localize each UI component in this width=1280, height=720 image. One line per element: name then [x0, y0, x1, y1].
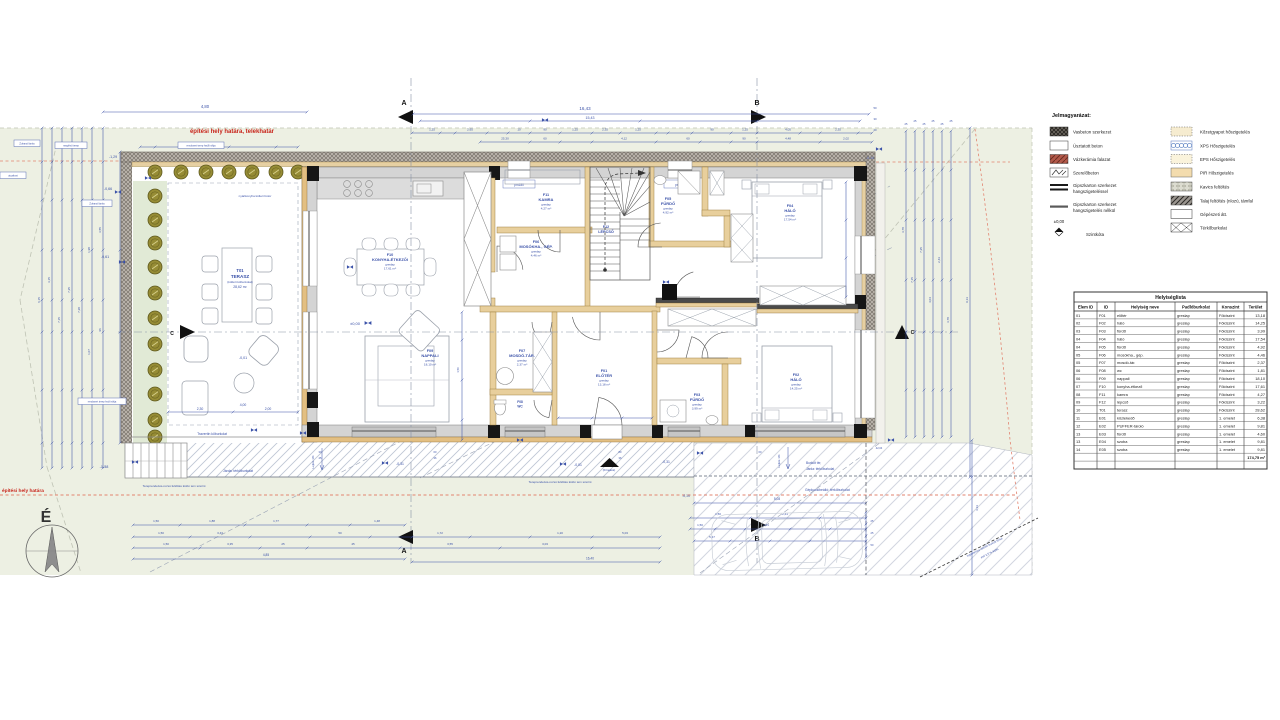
- svg-text:1,50: 1,50: [163, 542, 169, 546]
- svg-text:90: 90: [543, 128, 547, 132]
- svg-text:1,50: 1,50: [697, 523, 703, 527]
- svg-text:1. emelet: 1. emelet: [1219, 447, 1236, 452]
- svg-text:2,02: 2,02: [843, 137, 849, 141]
- svg-text:kamra: kamra: [1117, 392, 1129, 397]
- svg-text:F04: F04: [1099, 337, 1107, 342]
- svg-text:13: 13: [1076, 439, 1080, 444]
- svg-text:A: A: [401, 100, 406, 107]
- svg-text:Padlóburkolat: Padlóburkolat: [1182, 304, 1211, 309]
- svg-text:nyárikonyha külteri bútor: nyárikonyha külteri bútor: [239, 194, 272, 198]
- svg-text:45: 45: [351, 542, 355, 546]
- svg-text:EPS Hőszigetelés: EPS Hőszigetelés: [1200, 157, 1236, 162]
- svg-text:Földszint: Földszint: [1219, 344, 1235, 349]
- svg-text:4,48: 4,48: [785, 137, 791, 141]
- svg-text:greslap: greslap: [1177, 392, 1190, 397]
- svg-text:greslap: greslap: [1177, 360, 1190, 365]
- svg-text:Kőzetgyapot hőszigetelés: Kőzetgyapot hőszigetelés: [1200, 130, 1251, 135]
- svg-text:174,75 m²: 174,75 m²: [1247, 455, 1265, 460]
- svg-text:9,13: 9,13: [965, 297, 969, 303]
- svg-text:WC: WC: [517, 405, 523, 409]
- svg-text:T01: T01: [236, 268, 244, 273]
- svg-text:-0,14: -0,14: [866, 156, 874, 160]
- svg-text:-1,38: -1,38: [100, 465, 109, 469]
- svg-text:Járda: térkőburkolat: Járda: térkőburkolat: [806, 467, 834, 471]
- svg-text:konyha-étkező: konyha-étkező: [1117, 384, 1143, 389]
- svg-text:4,80: 4,80: [201, 104, 210, 109]
- svg-text:Szerelőbeton: Szerelőbeton: [1073, 171, 1099, 176]
- svg-text:építési hely határa, telekhatá: építési hely határa, telekhatár: [190, 129, 275, 135]
- svg-text:E01: E01: [1099, 416, 1106, 421]
- svg-text:közlekedő: közlekedő: [1117, 416, 1135, 421]
- svg-text:1. emelet: 1. emelet: [1219, 431, 1236, 436]
- svg-text:Gépészeti átt.: Gépészeti átt.: [1200, 212, 1227, 217]
- svg-text:18,10 m²: 18,10 m²: [424, 363, 436, 367]
- svg-text:2,65: 2,65: [467, 128, 473, 132]
- svg-text:Vasbeton szerkezet: Vasbeton szerkezet: [1073, 130, 1112, 135]
- svg-text:Földszint: Földszint: [1219, 408, 1235, 413]
- svg-text:50: 50: [338, 531, 342, 535]
- svg-text:LÉPCSŐ: LÉPCSŐ: [598, 229, 614, 234]
- svg-text:3,99 m²: 3,99 m²: [692, 407, 703, 411]
- svg-text:greslap: greslap: [1177, 344, 1190, 349]
- svg-text:1. emelet: 1. emelet: [1219, 416, 1236, 421]
- svg-text:3,99: 3,99: [1257, 329, 1265, 334]
- svg-text:meglévő terep: meglévő terep: [63, 145, 79, 148]
- svg-text:E04: E04: [1099, 439, 1107, 444]
- svg-text:greslap: greslap: [1177, 439, 1190, 444]
- svg-text:TERASZ: TERASZ: [231, 274, 250, 279]
- svg-text:T01: T01: [1099, 408, 1106, 413]
- svg-text:fürdő: fürdő: [1117, 431, 1127, 436]
- svg-text:(kültéri kőburkolat): (kültéri kőburkolat): [227, 280, 252, 284]
- svg-text:F02: F02: [1099, 321, 1106, 326]
- svg-text:17,54: 17,54: [1255, 337, 1266, 342]
- svg-text:60: 60: [543, 137, 547, 141]
- svg-text:7,28: 7,28: [77, 307, 81, 313]
- svg-text:1,20: 1,20: [557, 531, 563, 535]
- svg-text:Földszint: Földszint: [1219, 400, 1235, 405]
- svg-text:3,03: 3,03: [542, 542, 548, 546]
- svg-text:Terület: Terület: [1249, 304, 1263, 309]
- svg-text:Földszint: Földszint: [1219, 313, 1235, 318]
- svg-text:4,46: 4,46: [1257, 352, 1265, 357]
- svg-text:háló: háló: [1117, 337, 1124, 342]
- svg-text:-1,29: -1,29: [109, 155, 117, 159]
- svg-text:1,25: 1,25: [635, 128, 641, 132]
- svg-text:6,15: 6,15: [37, 297, 41, 303]
- svg-text:F08: F08: [517, 400, 523, 404]
- svg-text:háló: háló: [1117, 321, 1124, 326]
- svg-text:5,08: 5,08: [774, 497, 780, 501]
- svg-text:-0,01: -0,01: [574, 463, 582, 467]
- svg-text:9,81: 9,81: [1257, 447, 1265, 452]
- svg-text:XPS Hőszigetelés: XPS Hőszigetelés: [1200, 144, 1236, 149]
- svg-text:greslap: greslap: [1177, 352, 1190, 357]
- svg-text:NAPPALI: NAPPALI: [421, 353, 438, 358]
- svg-text:17,61 m²: 17,61 m²: [384, 267, 396, 271]
- svg-text:Földszint: Földszint: [1219, 368, 1235, 373]
- svg-text:greslap: greslap: [1177, 431, 1190, 436]
- svg-text:1,77: 1,77: [273, 519, 279, 523]
- svg-text:F12: F12: [1099, 400, 1106, 405]
- svg-text:3,55: 3,55: [98, 227, 102, 233]
- svg-text:Járda: térkőburkolat: Járda: térkőburkolat: [223, 469, 253, 473]
- svg-text:1,50: 1,50: [456, 367, 460, 373]
- svg-text:É: É: [41, 507, 52, 526]
- svg-text:07: 07: [1076, 384, 1080, 389]
- svg-text:Gipszkarton szerkezet: Gipszkarton szerkezet: [1073, 202, 1117, 207]
- svg-text:MOSÓKHA., GÉP.: MOSÓKHA., GÉP.: [519, 244, 552, 249]
- svg-text:1,48: 1,48: [374, 519, 380, 523]
- svg-text:06: 06: [1076, 376, 1080, 381]
- svg-text:rendszert terep hsúli síkja: rendszert terep hsúli síkja: [88, 401, 117, 404]
- svg-text:építési hely határa: építési hely határa: [2, 488, 44, 494]
- svg-text:-0,61: -0,61: [101, 255, 109, 259]
- svg-text:rendszert terep hsúlli síkja: rendszert terep hsúlli síkja: [186, 145, 216, 148]
- svg-text:F03: F03: [1099, 329, 1106, 334]
- svg-text:±0,00: ±0,00: [350, 321, 361, 326]
- svg-text:1,07: 1,07: [87, 349, 91, 355]
- svg-text:3,78: 3,78: [946, 317, 950, 323]
- svg-text:28,62: 28,62: [1255, 408, 1265, 413]
- svg-text:4,04: 4,04: [928, 297, 932, 303]
- svg-text:Földszint: Földszint: [1219, 360, 1235, 365]
- svg-text:1,72: 1,72: [437, 531, 443, 535]
- svg-text:greslap: greslap: [1177, 408, 1190, 413]
- svg-text:3,13: 3,13: [975, 505, 979, 511]
- svg-text:greslap: greslap: [1177, 337, 1190, 342]
- svg-text:01: 01: [1076, 313, 1080, 318]
- svg-text:nappali: nappali: [1117, 376, 1130, 381]
- svg-text:1,25: 1,25: [572, 128, 578, 132]
- svg-text:1,98: 1,98: [87, 247, 91, 253]
- svg-text:17,54 m²: 17,54 m²: [784, 218, 796, 222]
- svg-text:KAMRA: KAMRA: [539, 197, 554, 202]
- svg-text:mosdó-tár.: mosdó-tár.: [1117, 360, 1135, 365]
- svg-text:Földszint: Földszint: [1219, 384, 1235, 389]
- svg-text:Földszint: Földszint: [1219, 352, 1235, 357]
- svg-text:terasz: terasz: [1117, 408, 1128, 413]
- svg-text:utcafront: utcafront: [8, 175, 18, 178]
- svg-text:Elem ID: Elem ID: [1078, 304, 1093, 309]
- svg-text:11: 11: [1076, 416, 1080, 421]
- svg-text:Tereprendezés-rozsú feltöltés: Tereprendezés-rozsú feltöltés külön terv…: [529, 480, 592, 484]
- svg-text:szoba: szoba: [1117, 447, 1128, 452]
- svg-text:fürdő: fürdő: [1117, 329, 1127, 334]
- svg-text:7,15: 7,15: [910, 277, 914, 283]
- svg-text:Kavics feltöltés: Kavics feltöltés: [1200, 185, 1230, 190]
- svg-text:F11: F11: [1099, 392, 1105, 397]
- svg-text:greslap: greslap: [1177, 423, 1190, 428]
- svg-text:greslap: greslap: [1177, 321, 1190, 326]
- svg-text:lépcső: lépcső: [1117, 400, 1129, 405]
- svg-text:Zuhanó lámla: Zuhanó lámla: [89, 203, 105, 206]
- svg-text:2,35: 2,35: [835, 128, 841, 132]
- svg-text:szoba: szoba: [1117, 439, 1128, 444]
- svg-text:4,46 m²: 4,46 m²: [531, 254, 542, 258]
- svg-text:50: 50: [873, 106, 877, 110]
- svg-text:30: 30: [873, 117, 877, 121]
- svg-text:7,25: 7,25: [67, 287, 71, 293]
- svg-text:20: 20: [873, 128, 877, 132]
- svg-text:pm180: pm180: [514, 183, 524, 187]
- svg-text:7,15: 7,15: [57, 317, 61, 323]
- svg-text:C: C: [170, 331, 174, 337]
- svg-text:4,92 m²: 4,92 m²: [663, 211, 674, 215]
- svg-text:1,81: 1,81: [1257, 368, 1265, 373]
- svg-text:E02: E02: [1099, 423, 1106, 428]
- svg-text:3,78: 3,78: [901, 227, 905, 233]
- svg-text:2,41: 2,41: [763, 523, 769, 527]
- svg-text:9,81: 9,81: [1257, 423, 1265, 428]
- svg-text:17,61: 17,61: [1255, 384, 1265, 389]
- svg-text:14,25 m²: 14,25 m²: [790, 387, 802, 391]
- svg-text:08: 08: [1076, 392, 1080, 397]
- svg-text:Úsztatott beton: Úsztatott beton: [1073, 144, 1103, 149]
- svg-text:28,62 m²: 28,62 m²: [233, 285, 247, 289]
- svg-text:1,25: 1,25: [429, 128, 435, 132]
- svg-text:05: 05: [1076, 352, 1080, 357]
- svg-text:Zuhanó lámla: Zuhanó lámla: [19, 143, 35, 146]
- svg-text:4,12: 4,12: [621, 137, 627, 141]
- svg-text:Tereprendezés-rozsú feltöltés: Tereprendezés-rozsú feltöltés külön terv…: [143, 484, 206, 488]
- svg-text:Talaj feltöltés (nlozú, támfal: Talaj feltöltés (nlozú, támfal: [1200, 199, 1253, 204]
- svg-text:Travertin kőburkolat: Travertin kőburkolat: [197, 432, 227, 436]
- svg-text:02: 02: [1076, 321, 1080, 326]
- svg-text:7,25: 7,25: [919, 247, 923, 253]
- svg-text:HÁLÓ: HÁLÓ: [790, 377, 801, 382]
- svg-text:F07: F07: [1099, 360, 1106, 365]
- svg-text:Helyiséglista: Helyiséglista: [1155, 295, 1186, 301]
- svg-text:FÜRDŐ: FÜRDŐ: [690, 397, 704, 402]
- svg-text:2,37 m²: 2,37 m²: [517, 363, 528, 367]
- svg-text:3,15: 3,15: [47, 277, 51, 283]
- svg-text:F09: F09: [1099, 376, 1106, 381]
- svg-text:15,43: 15,43: [586, 116, 595, 120]
- svg-text:A: A: [401, 548, 406, 555]
- svg-text:1,50: 1,50: [715, 512, 721, 516]
- svg-text:3,55: 3,55: [447, 542, 453, 546]
- svg-text:Lejtés 1%: Lejtés 1%: [777, 454, 781, 468]
- svg-text:Vázkerámia falazat: Vázkerámia falazat: [1073, 157, 1111, 162]
- svg-text:mosókha., gép.: mosókha., gép.: [1117, 352, 1144, 357]
- svg-text:greslap: greslap: [1177, 368, 1190, 373]
- svg-text:MOSDÓ-TÁR.: MOSDÓ-TÁR.: [509, 353, 535, 358]
- svg-text:F08: F08: [1099, 368, 1106, 373]
- svg-text:2,00: 2,00: [265, 407, 272, 411]
- svg-text:Földszint: Földszint: [1219, 376, 1235, 381]
- svg-text:16,43: 16,43: [579, 106, 591, 111]
- svg-text:Konszint: Konszint: [1222, 304, 1240, 309]
- svg-text:5,03: 5,03: [622, 531, 628, 535]
- svg-text:C': C': [911, 330, 916, 336]
- svg-text:ID: ID: [1104, 304, 1108, 309]
- svg-text:hangszigetelés nélkül: hangszigetelés nélkül: [1073, 208, 1115, 213]
- svg-text:-0,31: -0,31: [662, 460, 670, 464]
- svg-text:4,05: 4,05: [785, 128, 791, 132]
- svg-text:-0,01: -0,01: [239, 356, 247, 360]
- svg-text:06: 06: [1076, 368, 1080, 373]
- svg-text:03: 03: [1076, 329, 1080, 334]
- svg-text:greslap: greslap: [1177, 400, 1190, 405]
- svg-text:05: 05: [1076, 360, 1080, 365]
- svg-text:60: 60: [686, 137, 690, 141]
- svg-text:-0,31: -0,31: [396, 462, 404, 466]
- svg-text:(fő bejárat): (fő bejárat): [603, 468, 616, 472]
- svg-text:1,88: 1,88: [209, 519, 215, 523]
- svg-text:F12: F12: [603, 225, 609, 229]
- svg-text:14,25: 14,25: [1255, 321, 1265, 326]
- svg-text:1,50: 1,50: [153, 519, 159, 523]
- svg-text:Helyiség neve: Helyiség neve: [1131, 304, 1160, 309]
- svg-text:B: B: [754, 536, 759, 543]
- svg-text:10: 10: [517, 128, 521, 132]
- svg-text:90: 90: [710, 128, 714, 132]
- svg-text:Gipszkarton szerkezet: Gipszkarton szerkezet: [1073, 183, 1117, 188]
- svg-text:4,27: 4,27: [1257, 392, 1265, 397]
- svg-text:25: 25: [281, 542, 285, 546]
- svg-text:fürdő: fürdő: [1117, 344, 1127, 349]
- svg-text:3,35: 3,35: [227, 542, 233, 546]
- svg-text:-0,14: -0,14: [682, 494, 689, 498]
- svg-text:B: B: [754, 100, 759, 107]
- svg-text:Lejtés 1%: Lejtés 1%: [311, 455, 315, 469]
- svg-text:greslap: greslap: [1177, 329, 1190, 334]
- svg-text:PIR Hőszigetelés: PIR Hőszigetelés: [1200, 171, 1234, 176]
- svg-text:2,35: 2,35: [602, 128, 608, 132]
- svg-text:96: 96: [98, 328, 102, 332]
- svg-text:12: 12: [1076, 423, 1080, 428]
- svg-text:Földszint: Földszint: [1219, 392, 1235, 397]
- svg-text:2,37: 2,37: [1257, 360, 1265, 365]
- svg-text:Térkőburkolat: Térkőburkolat: [1200, 226, 1228, 231]
- svg-text:4,92: 4,92: [1257, 344, 1265, 349]
- svg-text:előtér: előtér: [1117, 313, 1127, 318]
- svg-text:1. emelet: 1. emelet: [1219, 439, 1236, 444]
- svg-text:Szintkóta: Szintkóta: [1086, 232, 1105, 237]
- svg-text:greslap: greslap: [1177, 384, 1190, 389]
- svg-text:4,00: 4,00: [240, 403, 247, 407]
- svg-text:25,30: 25,30: [501, 137, 509, 141]
- svg-text:09: 09: [1076, 400, 1080, 405]
- svg-text:F06: F06: [1099, 352, 1106, 357]
- svg-text:greslap: greslap: [1177, 313, 1190, 318]
- svg-text:16,40: 16,40: [586, 557, 594, 561]
- svg-text:E03: E03: [1099, 431, 1106, 436]
- svg-text:4,60: 4,60: [1257, 431, 1265, 436]
- svg-text:3,22: 3,22: [1257, 400, 1265, 405]
- svg-text:1,50: 1,50: [158, 531, 164, 535]
- svg-text:wc: wc: [1117, 368, 1122, 373]
- svg-text:greslap: greslap: [1177, 447, 1190, 452]
- svg-text:13,18 m²: 13,18 m²: [598, 383, 610, 387]
- svg-text:6,38: 6,38: [1257, 416, 1265, 421]
- svg-text:Burkolt tér,: Burkolt tér,: [806, 461, 821, 465]
- svg-text:2,43: 2,43: [937, 257, 941, 263]
- svg-text:Gépkocsibeálló: térkőburkolat: Gépkocsibeálló: térkőburkolat: [805, 488, 850, 492]
- svg-text:Jelmagyarázat:: Jelmagyarázat:: [1052, 113, 1091, 119]
- svg-text:-0,66: -0,66: [104, 187, 112, 191]
- svg-text:F05: F05: [1099, 344, 1106, 349]
- svg-text:KONYHA-ÉTKEZŐI: KONYHA-ÉTKEZŐI: [372, 257, 408, 262]
- svg-text:Földszint: Földszint: [1219, 337, 1235, 342]
- svg-text:F01: F01: [1099, 313, 1106, 318]
- svg-text:greslap: greslap: [1177, 416, 1190, 421]
- svg-text:4,27 m²: 4,27 m²: [541, 207, 552, 211]
- svg-text:13: 13: [1076, 431, 1080, 436]
- svg-text:9,81: 9,81: [1257, 439, 1265, 444]
- svg-text:42,04: 42,04: [876, 446, 883, 450]
- svg-text:2,41: 2,41: [782, 512, 788, 516]
- svg-text:4,85: 4,85: [263, 553, 269, 557]
- svg-text:13,18: 13,18: [1255, 313, 1265, 318]
- svg-text:90: 90: [742, 137, 746, 141]
- svg-text:Földszint: Földszint: [1219, 321, 1235, 326]
- svg-text:greslap: greslap: [1177, 376, 1190, 381]
- svg-text:1,25: 1,25: [742, 128, 748, 132]
- svg-text:3,43: 3,43: [217, 531, 223, 535]
- svg-text:18,10: 18,10: [1255, 376, 1266, 381]
- svg-text:F10: F10: [1099, 384, 1107, 389]
- svg-text:hangszigeteléssel: hangszigeteléssel: [1073, 189, 1108, 194]
- svg-text:Földszint: Földszint: [1219, 329, 1235, 334]
- svg-text:PUFFER-tároló: PUFFER-tároló: [1117, 423, 1144, 428]
- svg-text:ELŐTÉR: ELŐTÉR: [596, 373, 612, 378]
- svg-text:±0,00: ±0,00: [1054, 219, 1065, 224]
- svg-text:1. emelet: 1. emelet: [1219, 423, 1236, 428]
- svg-text:HÁLÓ: HÁLÓ: [784, 208, 795, 213]
- svg-text:2,30: 2,30: [197, 407, 204, 411]
- svg-text:FÜRDŐ: FÜRDŐ: [661, 201, 675, 206]
- svg-text:E05: E05: [1099, 447, 1106, 452]
